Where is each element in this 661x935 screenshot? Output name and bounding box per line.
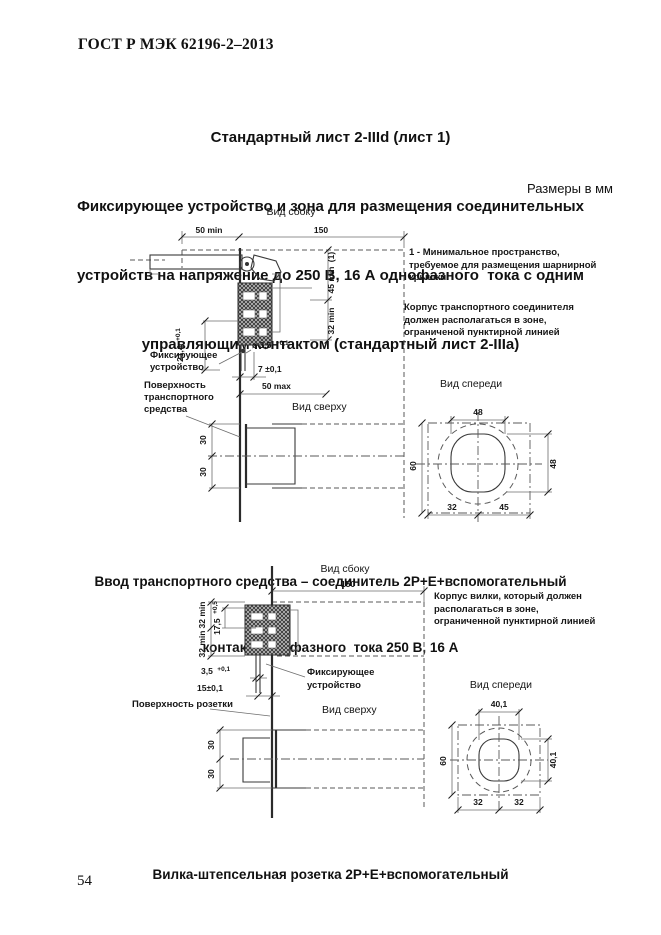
dim-150-label: 150	[314, 225, 328, 235]
document-page: ГОСТ Р МЭК 62196-2–2013 Стандартный лист…	[0, 0, 661, 935]
units-note: Размеры в мм	[527, 181, 613, 196]
fig2-dim-35-tolerance: +0,1	[217, 666, 230, 673]
fig1-note-zone-line1: Корпус транспортного соединителя	[404, 302, 599, 315]
fig2-dim-60-left-label: 60	[438, 756, 448, 766]
fig2-fixing-device-label-line1: Фиксирующее	[307, 667, 374, 678]
note-min-space-line1: 1 - Минимальное пространство,	[409, 247, 604, 260]
fig2-dim-15-label: 15±0,1	[197, 683, 223, 693]
fig2-dim-150-label: 150	[341, 579, 355, 589]
dim-dia35-tolerance: +0,1	[276, 340, 289, 347]
dim-60-left-label: 60	[408, 461, 418, 471]
fig1-note-zone-line2: должен располагаться в зоне,	[404, 315, 599, 328]
fig1-dim-50min-150: 50 min 150	[179, 225, 408, 248]
fig2-dim-175-tolerance: +0,5	[212, 601, 219, 614]
fixing-device-label-line1: Фиксирующее	[150, 350, 217, 361]
fig2-dim-401-top-label: 40,1	[491, 699, 508, 709]
fig1-zone-boundary	[182, 250, 404, 518]
dim-50min-label: 50 min	[196, 225, 223, 235]
socket-surface-label: Поверхность розетки	[132, 699, 233, 710]
fig2-note-zone-line2: располагаться в зоне,	[434, 604, 629, 617]
fig1-dim-48-right: 48	[507, 431, 558, 496]
vehicle-surface-label-line1: Поверхность	[144, 380, 206, 391]
fig2-note-zone-line3: ограниченной пунктирной линией	[434, 616, 629, 629]
fig1-front-centerlines	[416, 412, 542, 522]
dim-45min-label: 45 min	[326, 267, 336, 294]
fig2-front-centerlines	[450, 716, 548, 810]
fig2-dim-32min-top-label: 32 min	[197, 602, 207, 629]
document-standard-number: ГОСТ Р МЭК 62196-2–2013	[78, 36, 274, 54]
dim-50max-label: 50 max	[262, 381, 291, 391]
vehicle-surface-label-line2: транспортного	[144, 392, 214, 403]
fig2-dim-35: 3,5 +0,1	[201, 661, 267, 682]
fig2-dim-175-label: 17,5	[212, 618, 222, 635]
fig1-dim-45min-32min: (1) 45 min 32 min	[310, 247, 336, 344]
dim-32-bottom-label: 32	[447, 502, 457, 512]
fig1-front-view-label: Вид спереди	[440, 378, 502, 390]
fig2-front-view-label: Вид спереди	[470, 679, 532, 691]
fig2-dim-30-bottom-label: 30	[206, 769, 216, 779]
fig1-dim-50max: 50 max	[237, 381, 330, 398]
fig1-fixing-device-callout: Фиксирующее устройство	[150, 350, 242, 373]
dim-dia35-label: ø 3,5	[252, 340, 272, 350]
sheet-title-line1: Стандартный лист 2-IIId (лист 1)	[40, 126, 621, 149]
fig2-front-view: Вид спереди 40,1 60 40,1	[438, 679, 558, 814]
fig2-fixing-device-callout: Фиксирующее устройство	[266, 664, 374, 691]
vehicle-surface-label-line3: средства	[144, 404, 188, 415]
dim-30-bottom-label: 30	[198, 467, 208, 477]
fig2-dim-150: 150	[269, 579, 428, 602]
svg-text:3,5 +0,1: 3,5 +0,1	[201, 661, 230, 678]
fixing-device-label-line2: устройство	[150, 362, 204, 373]
fig2-note-zone-line1: Корпус вилки, который должен	[434, 591, 629, 604]
fig1-connector-body	[238, 274, 280, 371]
fig2-top-view-label: Вид сверху	[322, 704, 377, 716]
fig2-dim-32-left-label: 32	[473, 797, 483, 807]
fig2-dim-32min-bottom-label: 32 min	[197, 631, 207, 658]
fig1-hinged-lid-latch	[150, 255, 312, 288]
figure2-caption-line2: контакт однофазного тока до 250 В, 16 А	[0, 930, 661, 935]
fig2-dim-32-right-label: 32	[514, 797, 524, 807]
note-min-space-line2: требуемое для размещения шарнирной	[409, 260, 604, 273]
fig1-dim-60-left: 60	[408, 420, 426, 517]
fig2-fixing-device-label-line2: устройство	[307, 680, 361, 691]
dim-ref1-label: (1)	[326, 252, 336, 263]
dim-45-bottom-label: 45	[499, 502, 509, 512]
dim-30-top-label: 30	[198, 435, 208, 445]
dim-48-right-label: 48	[548, 459, 558, 469]
fig1-front-zone-box	[428, 423, 530, 513]
fig1-top-view-label: Вид сверху	[292, 401, 347, 413]
fig2-side-view: Вид сбоку 150	[132, 563, 428, 818]
fig1-note-min-space: 1 - Минимальное пространство, требуемое …	[409, 247, 604, 285]
figure2-caption: Вилка-штепсельная розетка 2Р+Е+вспомогат…	[0, 820, 661, 935]
fig1-top-view: Вид сверху 30 30	[198, 401, 404, 492]
note-min-space-line3: крышки	[409, 272, 604, 285]
fig2-dim-35-label: 3,5	[201, 666, 213, 676]
fig1-side-view: Вид сбоку 50 min 150	[130, 206, 408, 522]
page-number: 54	[77, 873, 92, 890]
fig2-side-view-label: Вид сбоку	[321, 563, 371, 575]
fig2-note-zone: Корпус вилки, который должен располагать…	[434, 591, 629, 629]
dim-7-label: 7 ±0,1	[258, 364, 282, 374]
dim-32min-label: 32 min	[326, 308, 336, 335]
connector-contact-slots	[243, 292, 267, 336]
fig2-dim-15: 15±0,1	[197, 683, 280, 700]
fig2-dim-30-top-label: 30	[206, 740, 216, 750]
fig2-dim-401-right-label: 40,1	[548, 751, 558, 768]
figure2-caption-line1: Вилка-штепсельная розетка 2Р+Е+вспомогат…	[0, 864, 661, 886]
dim-214-tolerance: +0,1	[175, 328, 182, 341]
fig1-note-zone-line3: ограниченой пунктирной линией	[404, 327, 599, 340]
fig1-vehicle-surface-callout: Поверхность транспортного средства	[144, 380, 240, 437]
fig1-zone-boundary-left	[130, 250, 182, 268]
fig2-top-view: Вид сверху 30 30	[206, 704, 424, 792]
fig1-side-view-label: Вид сбоку	[267, 206, 317, 218]
fig1-front-view: Вид спереди 48 60 48	[408, 378, 558, 522]
fig1-note-zone: Корпус транспортного соединителя должен …	[404, 302, 599, 340]
fig2-socket-surface-callout: Поверхность розетки	[132, 699, 270, 716]
fig1-dim-32-45-bottom: 32 45	[425, 502, 534, 519]
